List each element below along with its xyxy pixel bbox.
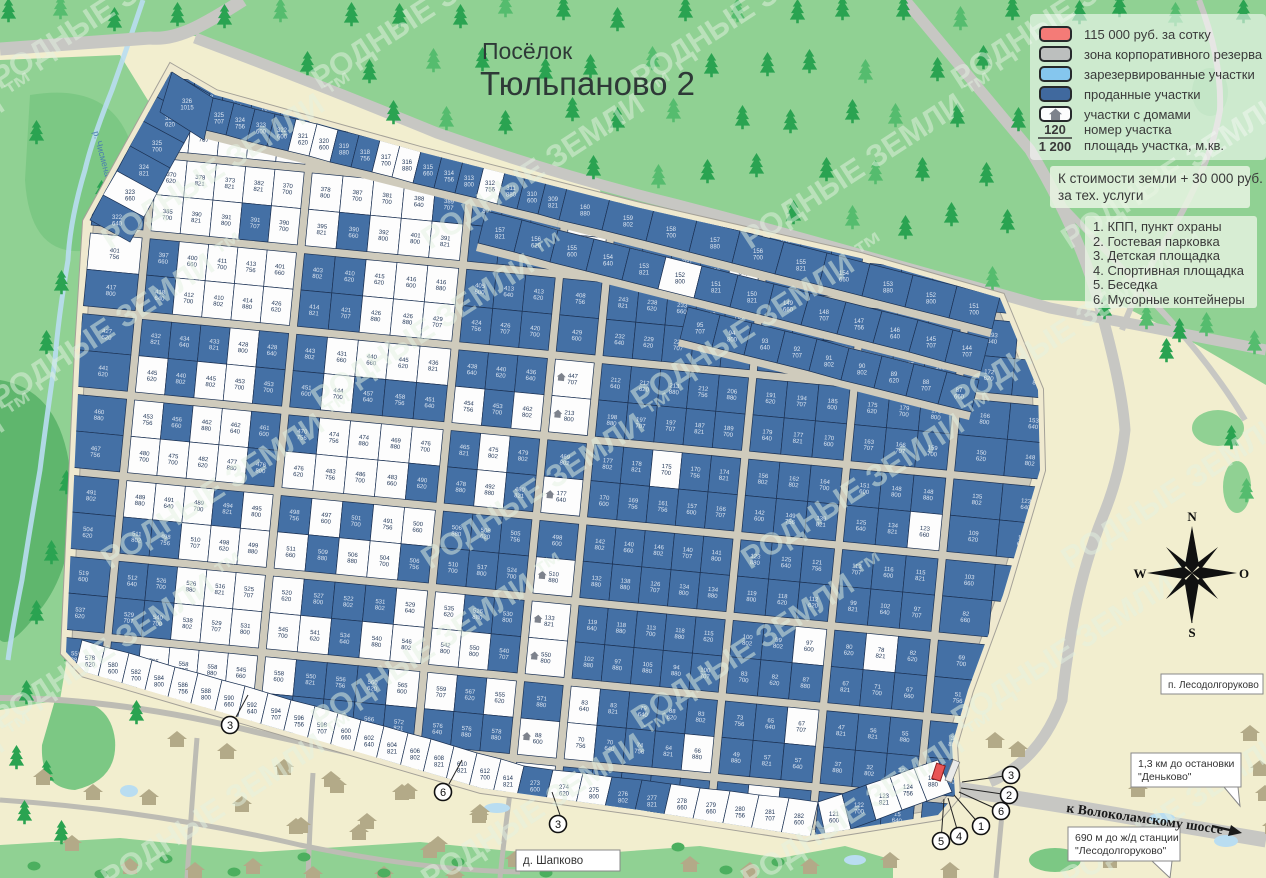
svg-text:212640: 212640 bbox=[610, 378, 622, 391]
svg-text:177821: 177821 bbox=[792, 432, 804, 445]
svg-text:576640: 576640 bbox=[432, 723, 444, 736]
svg-text:445620: 445620 bbox=[146, 370, 158, 383]
svg-text:"Деньково": "Деньково" bbox=[1138, 771, 1192, 783]
svg-text:390700: 390700 bbox=[278, 220, 290, 233]
svg-text:465821: 465821 bbox=[459, 444, 471, 457]
svg-text:413756: 413756 bbox=[245, 261, 257, 274]
svg-text:279660: 279660 bbox=[706, 803, 717, 815]
svg-text:614821: 614821 bbox=[503, 776, 514, 788]
svg-text:за тех. услуги: за тех. услуги bbox=[1058, 188, 1143, 203]
svg-text:414821: 414821 bbox=[308, 304, 320, 317]
svg-text:517800: 517800 bbox=[476, 565, 488, 578]
svg-text:475700: 475700 bbox=[167, 454, 179, 467]
svg-text:440620: 440620 bbox=[495, 367, 507, 380]
svg-text:103660: 103660 bbox=[964, 574, 976, 587]
svg-text:462640: 462640 bbox=[230, 422, 242, 435]
svg-text:467756: 467756 bbox=[90, 446, 102, 459]
svg-text:540707: 540707 bbox=[498, 648, 510, 661]
svg-text:Тюльпаново 2: Тюльпаново 2 bbox=[480, 65, 695, 102]
svg-text:453700: 453700 bbox=[234, 379, 246, 392]
svg-text:558600: 558600 bbox=[273, 671, 285, 684]
svg-text:690 м до ж/д станции: 690 м до ж/д станции bbox=[1075, 832, 1179, 844]
svg-text:426707: 426707 bbox=[500, 323, 512, 336]
svg-text:397660: 397660 bbox=[158, 253, 170, 266]
svg-text:175700: 175700 bbox=[661, 464, 673, 477]
svg-text:179640: 179640 bbox=[761, 429, 773, 442]
svg-text:281707: 281707 bbox=[765, 810, 776, 822]
svg-text:410802: 410802 bbox=[213, 295, 225, 308]
svg-text:д. Шапково: д. Шапково bbox=[523, 855, 583, 867]
svg-text:584800: 584800 bbox=[154, 676, 165, 688]
svg-text:147756: 147756 bbox=[854, 319, 865, 331]
svg-text:119640: 119640 bbox=[586, 619, 598, 632]
svg-text:178821: 178821 bbox=[631, 461, 643, 474]
svg-text:558880: 558880 bbox=[206, 664, 218, 677]
svg-text:6. Мусорные контейнеры: 6. Мусорные контейнеры bbox=[1093, 292, 1245, 307]
svg-text:401660: 401660 bbox=[274, 264, 286, 277]
svg-text:512640: 512640 bbox=[127, 575, 139, 588]
svg-text:474880: 474880 bbox=[358, 435, 370, 448]
svg-text:395821: 395821 bbox=[316, 224, 328, 237]
svg-text:489880: 489880 bbox=[134, 495, 146, 508]
svg-text:194707: 194707 bbox=[796, 395, 808, 408]
svg-text:478880: 478880 bbox=[455, 481, 467, 494]
svg-text:163707: 163707 bbox=[863, 439, 875, 452]
svg-text:511660: 511660 bbox=[285, 546, 297, 559]
svg-text:6: 6 bbox=[440, 787, 446, 799]
svg-text:453700: 453700 bbox=[492, 403, 504, 416]
svg-text:118880: 118880 bbox=[674, 628, 686, 641]
svg-text:участки с домами: участки с домами bbox=[1084, 107, 1191, 122]
svg-text:612700: 612700 bbox=[480, 769, 491, 781]
svg-text:161756: 161756 bbox=[657, 501, 669, 514]
svg-text:206880: 206880 bbox=[726, 389, 738, 402]
svg-text:408756: 408756 bbox=[575, 293, 587, 306]
svg-text:156802: 156802 bbox=[757, 473, 769, 486]
svg-text:319880: 319880 bbox=[339, 144, 350, 156]
svg-text:5. Беседка: 5. Беседка bbox=[1093, 277, 1158, 292]
svg-text:504700: 504700 bbox=[379, 555, 391, 568]
svg-text:157880: 157880 bbox=[710, 238, 721, 250]
svg-text:550800: 550800 bbox=[540, 652, 552, 665]
svg-text:453700: 453700 bbox=[263, 381, 275, 394]
svg-text:498756: 498756 bbox=[289, 509, 301, 522]
svg-text:436821: 436821 bbox=[428, 360, 440, 373]
svg-text:309821: 309821 bbox=[548, 197, 559, 209]
svg-text:315660: 315660 bbox=[423, 165, 434, 177]
svg-text:555620: 555620 bbox=[494, 692, 506, 705]
svg-text:134821: 134821 bbox=[887, 523, 899, 536]
svg-text:125640: 125640 bbox=[855, 520, 867, 533]
svg-text:133821: 133821 bbox=[544, 615, 556, 628]
svg-text:157600: 157600 bbox=[686, 503, 698, 516]
svg-text:538802: 538802 bbox=[182, 618, 194, 631]
svg-text:3: 3 bbox=[555, 819, 561, 831]
svg-text:509880: 509880 bbox=[317, 549, 329, 562]
svg-text:429600: 429600 bbox=[571, 330, 583, 343]
svg-text:451640: 451640 bbox=[424, 397, 436, 410]
svg-text:1,3 км до остановки: 1,3 км до остановки bbox=[1138, 758, 1235, 770]
svg-text:160880: 160880 bbox=[580, 205, 591, 217]
svg-text:146802: 146802 bbox=[653, 544, 665, 557]
svg-text:134880: 134880 bbox=[707, 587, 719, 600]
svg-text:453756: 453756 bbox=[142, 414, 154, 427]
svg-text:238620: 238620 bbox=[646, 300, 658, 313]
svg-text:483660: 483660 bbox=[386, 475, 398, 488]
svg-text:148880: 148880 bbox=[923, 489, 935, 502]
svg-text:113700: 113700 bbox=[645, 625, 657, 638]
svg-text:170600: 170600 bbox=[823, 435, 835, 448]
svg-text:445802: 445802 bbox=[205, 376, 217, 389]
svg-text:109620: 109620 bbox=[968, 531, 980, 544]
svg-text:320600: 320600 bbox=[319, 139, 330, 151]
svg-text:426880: 426880 bbox=[370, 310, 382, 323]
svg-text:415620: 415620 bbox=[374, 273, 386, 286]
svg-text:486700: 486700 bbox=[355, 472, 367, 485]
svg-text:115 000 руб. за сотку: 115 000 руб. за сотку bbox=[1084, 27, 1211, 42]
svg-text:428800: 428800 bbox=[237, 342, 249, 355]
svg-text:189700: 189700 bbox=[723, 426, 735, 439]
svg-text:403802: 403802 bbox=[312, 268, 324, 281]
svg-text:102880: 102880 bbox=[583, 656, 595, 669]
svg-text:S: S bbox=[1188, 625, 1195, 640]
svg-text:321620: 321620 bbox=[298, 134, 309, 146]
svg-text:162802: 162802 bbox=[788, 476, 800, 489]
svg-text:125640: 125640 bbox=[780, 557, 792, 570]
svg-text:280756: 280756 bbox=[735, 807, 746, 819]
svg-text:447707: 447707 bbox=[567, 373, 579, 386]
svg-text:146640: 146640 bbox=[890, 328, 901, 340]
svg-text:545700: 545700 bbox=[277, 627, 289, 640]
svg-text:469880: 469880 bbox=[390, 438, 402, 451]
svg-text:зарезервированные участки: зарезервированные участки bbox=[1084, 67, 1255, 82]
svg-text:4. Спортивная площадка: 4. Спортивная площадка bbox=[1093, 263, 1245, 278]
svg-text:491756: 491756 bbox=[382, 518, 394, 531]
svg-text:140660: 140660 bbox=[623, 542, 635, 555]
svg-text:314756: 314756 bbox=[444, 171, 455, 183]
svg-text:179700: 179700 bbox=[898, 405, 910, 418]
svg-text:W: W bbox=[1134, 566, 1147, 581]
svg-text:462802: 462802 bbox=[522, 406, 534, 419]
svg-text:102640: 102640 bbox=[879, 603, 891, 616]
svg-text:140707: 140707 bbox=[682, 547, 694, 560]
svg-text:457640: 457640 bbox=[362, 391, 374, 404]
svg-text:495800: 495800 bbox=[251, 506, 263, 519]
svg-text:278660: 278660 bbox=[677, 799, 688, 811]
svg-text:119800: 119800 bbox=[746, 591, 758, 604]
svg-text:388640: 388640 bbox=[413, 196, 425, 209]
svg-text:1: 1 bbox=[978, 821, 984, 833]
svg-text:166707: 166707 bbox=[715, 506, 727, 519]
svg-text:132880: 132880 bbox=[591, 576, 603, 589]
svg-text:479802: 479802 bbox=[517, 450, 529, 463]
svg-text:152800: 152800 bbox=[675, 273, 686, 285]
svg-text:529707: 529707 bbox=[211, 620, 223, 633]
svg-text:531800: 531800 bbox=[240, 623, 252, 636]
svg-text:144707: 144707 bbox=[962, 346, 973, 358]
svg-text:324821: 324821 bbox=[139, 165, 150, 177]
svg-text:378800: 378800 bbox=[320, 187, 332, 200]
svg-text:148802: 148802 bbox=[1024, 455, 1036, 468]
svg-text:145707: 145707 bbox=[926, 337, 937, 349]
svg-text:213800: 213800 bbox=[563, 410, 575, 423]
svg-text:158700: 158700 bbox=[666, 227, 677, 239]
svg-text:390821: 390821 bbox=[191, 212, 203, 225]
svg-text:550821: 550821 bbox=[305, 674, 317, 687]
svg-text:480700: 480700 bbox=[139, 451, 151, 464]
svg-text:п. Лесодолгоруково: п. Лесодолгоруково bbox=[1168, 680, 1259, 691]
svg-text:438640: 438640 bbox=[466, 364, 478, 377]
svg-text:590660: 590660 bbox=[224, 696, 235, 708]
svg-text:506880: 506880 bbox=[347, 552, 359, 565]
svg-text:540880: 540880 bbox=[371, 636, 383, 649]
svg-text:420700: 420700 bbox=[529, 326, 541, 339]
svg-text:390660: 390660 bbox=[348, 227, 360, 240]
svg-text:1 200: 1 200 bbox=[1039, 139, 1072, 154]
svg-text:424756: 424756 bbox=[471, 320, 483, 333]
svg-text:126707: 126707 bbox=[649, 581, 661, 594]
svg-text:510707: 510707 bbox=[190, 537, 202, 550]
svg-text:525707: 525707 bbox=[243, 586, 255, 599]
svg-text:187821: 187821 bbox=[694, 423, 706, 436]
svg-text:212756: 212756 bbox=[697, 386, 709, 399]
svg-text:174821: 174821 bbox=[718, 469, 730, 482]
svg-text:537620: 537620 bbox=[74, 607, 86, 620]
svg-text:559707: 559707 bbox=[435, 686, 447, 699]
svg-text:428640: 428640 bbox=[266, 344, 278, 357]
svg-text:115620: 115620 bbox=[703, 631, 715, 644]
svg-text:151700: 151700 bbox=[969, 304, 980, 316]
svg-text:148800: 148800 bbox=[891, 486, 903, 499]
svg-text:277821: 277821 bbox=[647, 796, 658, 808]
svg-text:476700: 476700 bbox=[420, 441, 432, 454]
svg-text:519600: 519600 bbox=[78, 570, 90, 583]
svg-text:115821: 115821 bbox=[915, 570, 927, 583]
svg-text:120: 120 bbox=[1044, 122, 1066, 137]
svg-text:5: 5 bbox=[938, 836, 944, 848]
svg-text:4: 4 bbox=[956, 831, 962, 843]
svg-text:150620: 150620 bbox=[976, 450, 988, 463]
svg-text:159802: 159802 bbox=[623, 216, 634, 228]
svg-text:313800: 313800 bbox=[464, 176, 475, 188]
svg-text:381700: 381700 bbox=[381, 193, 393, 206]
svg-text:3. Детская площадка: 3. Детская площадка bbox=[1093, 248, 1221, 263]
svg-text:534640: 534640 bbox=[339, 633, 351, 646]
svg-text:491802: 491802 bbox=[86, 490, 98, 503]
svg-text:426620: 426620 bbox=[271, 301, 283, 314]
svg-text:392800: 392800 bbox=[378, 230, 390, 243]
svg-text:317700: 317700 bbox=[381, 155, 392, 167]
svg-text:490620: 490620 bbox=[416, 477, 428, 490]
svg-text:610821: 610821 bbox=[457, 762, 468, 774]
svg-text:460880: 460880 bbox=[93, 409, 105, 422]
svg-text:443802: 443802 bbox=[304, 348, 316, 361]
svg-text:157821: 157821 bbox=[495, 228, 506, 240]
svg-text:316880: 316880 bbox=[402, 160, 413, 172]
svg-text:413620: 413620 bbox=[533, 289, 545, 302]
svg-text:421707: 421707 bbox=[340, 307, 352, 320]
svg-text:243821: 243821 bbox=[618, 297, 630, 310]
svg-text:134800: 134800 bbox=[678, 584, 690, 597]
svg-text:3: 3 bbox=[227, 720, 233, 732]
svg-text:318756: 318756 bbox=[360, 150, 371, 162]
svg-text:325707: 325707 bbox=[214, 113, 225, 125]
svg-text:527800: 527800 bbox=[313, 593, 325, 606]
svg-text:522802: 522802 bbox=[343, 596, 355, 609]
svg-text:482620: 482620 bbox=[197, 456, 209, 469]
svg-text:433821: 433821 bbox=[209, 339, 221, 352]
svg-text:541620: 541620 bbox=[309, 630, 321, 643]
svg-text:608821: 608821 bbox=[434, 756, 445, 768]
svg-text:276802: 276802 bbox=[618, 792, 629, 804]
svg-text:142802: 142802 bbox=[594, 539, 606, 552]
svg-text:414880: 414880 bbox=[242, 298, 254, 311]
svg-text:458756: 458756 bbox=[394, 394, 406, 407]
svg-text:432821: 432821 bbox=[150, 333, 162, 346]
svg-text:229620: 229620 bbox=[643, 337, 655, 350]
svg-text:476620: 476620 bbox=[293, 466, 305, 479]
svg-text:387700: 387700 bbox=[352, 190, 364, 203]
svg-text:529640: 529640 bbox=[404, 602, 416, 615]
svg-text:118880: 118880 bbox=[615, 622, 627, 635]
svg-text:площадь участка, м.кв.: площадь участка, м.кв. bbox=[1084, 138, 1224, 153]
svg-text:416880: 416880 bbox=[435, 279, 447, 292]
svg-text:3: 3 bbox=[1008, 770, 1014, 782]
svg-text:410620: 410620 bbox=[344, 271, 356, 284]
svg-text:475802: 475802 bbox=[488, 447, 500, 460]
svg-text:153640: 153640 bbox=[1028, 418, 1040, 431]
svg-text:582700: 582700 bbox=[131, 670, 142, 682]
svg-text:105880: 105880 bbox=[642, 662, 654, 675]
svg-text:441620: 441620 bbox=[98, 365, 110, 378]
svg-text:434640: 434640 bbox=[179, 336, 191, 349]
svg-text:1. КПП, пункт охраны: 1. КПП, пункт охраны bbox=[1093, 219, 1222, 234]
svg-text:454756: 454756 bbox=[463, 401, 475, 414]
svg-text:417800: 417800 bbox=[105, 285, 117, 298]
svg-text:592640: 592640 bbox=[247, 703, 258, 715]
svg-text:154640: 154640 bbox=[603, 255, 614, 267]
svg-text:588800: 588800 bbox=[201, 689, 212, 701]
svg-text:505756: 505756 bbox=[510, 531, 522, 544]
svg-text:325700: 325700 bbox=[152, 141, 163, 153]
svg-text:571880: 571880 bbox=[536, 696, 548, 709]
svg-text:370700: 370700 bbox=[282, 183, 294, 196]
svg-text:191620: 191620 bbox=[765, 393, 777, 406]
svg-text:151821: 151821 bbox=[711, 282, 722, 294]
svg-text:6: 6 bbox=[998, 806, 1004, 818]
svg-text:2: 2 bbox=[1006, 790, 1012, 802]
svg-text:148707: 148707 bbox=[819, 310, 830, 322]
svg-text:578880: 578880 bbox=[491, 729, 503, 742]
svg-text:416600: 416600 bbox=[406, 277, 418, 290]
svg-text:175620: 175620 bbox=[867, 402, 879, 415]
svg-text:2. Гостевая парковка: 2. Гостевая парковка bbox=[1093, 234, 1220, 249]
svg-text:170756: 170756 bbox=[690, 467, 702, 480]
svg-text:602640: 602640 bbox=[364, 736, 375, 748]
svg-text:141800: 141800 bbox=[711, 550, 723, 563]
svg-text:153880: 153880 bbox=[883, 282, 894, 294]
svg-text:545660: 545660 bbox=[235, 667, 247, 680]
svg-text:123660: 123660 bbox=[919, 526, 931, 539]
svg-text:506756: 506756 bbox=[409, 558, 421, 571]
svg-text:проданные участки: проданные участки bbox=[1084, 87, 1200, 102]
svg-text:К стоимости земли + 30 000 руб: К стоимости земли + 30 000 руб. bbox=[1058, 171, 1263, 186]
svg-text:531802: 531802 bbox=[374, 599, 386, 612]
svg-text:O: O bbox=[1239, 566, 1249, 581]
svg-text:520620: 520620 bbox=[281, 590, 293, 603]
svg-text:586756: 586756 bbox=[178, 683, 189, 695]
svg-text:596756: 596756 bbox=[294, 716, 305, 728]
svg-text:121756: 121756 bbox=[811, 560, 823, 573]
svg-text:185600: 185600 bbox=[827, 398, 839, 411]
svg-text:153821: 153821 bbox=[639, 264, 650, 276]
svg-text:500660: 500660 bbox=[412, 521, 424, 534]
svg-text:604821: 604821 bbox=[387, 743, 398, 755]
svg-text:номер участка: номер участка bbox=[1084, 122, 1172, 137]
svg-text:391707: 391707 bbox=[249, 217, 261, 230]
svg-text:494821: 494821 bbox=[222, 503, 234, 516]
svg-text:169756: 169756 bbox=[627, 498, 639, 511]
svg-text:594707: 594707 bbox=[271, 709, 282, 721]
svg-text:499880: 499880 bbox=[247, 543, 259, 556]
svg-text:462880: 462880 bbox=[201, 420, 213, 433]
svg-text:382821: 382821 bbox=[253, 180, 265, 193]
svg-text:232640: 232640 bbox=[614, 334, 626, 347]
svg-text:зона корпоративного резерва: зона корпоративного резерва bbox=[1084, 47, 1263, 62]
svg-text:135802: 135802 bbox=[971, 494, 983, 507]
svg-text:436640: 436640 bbox=[525, 369, 537, 382]
svg-text:138880: 138880 bbox=[620, 578, 632, 591]
svg-text:456660: 456660 bbox=[171, 417, 183, 430]
svg-text:142600: 142600 bbox=[754, 510, 766, 523]
svg-text:497600: 497600 bbox=[320, 512, 332, 525]
svg-text:N: N bbox=[1187, 509, 1197, 524]
svg-text:Посёлок: Посёлок bbox=[482, 38, 573, 64]
svg-text:576880: 576880 bbox=[461, 726, 473, 739]
svg-text:550800: 550800 bbox=[468, 645, 480, 658]
svg-text:504620: 504620 bbox=[82, 527, 94, 540]
svg-text:501700: 501700 bbox=[350, 515, 362, 528]
svg-text:567620: 567620 bbox=[464, 689, 476, 702]
svg-text:"Лесодолгоруково": "Лесодолгоруково" bbox=[1075, 845, 1167, 857]
svg-text:440802: 440802 bbox=[175, 373, 187, 386]
svg-text:170600: 170600 bbox=[598, 495, 610, 508]
svg-text:606802: 606802 bbox=[410, 749, 421, 761]
svg-text:483756: 483756 bbox=[325, 469, 337, 482]
svg-text:152800: 152800 bbox=[926, 293, 937, 305]
